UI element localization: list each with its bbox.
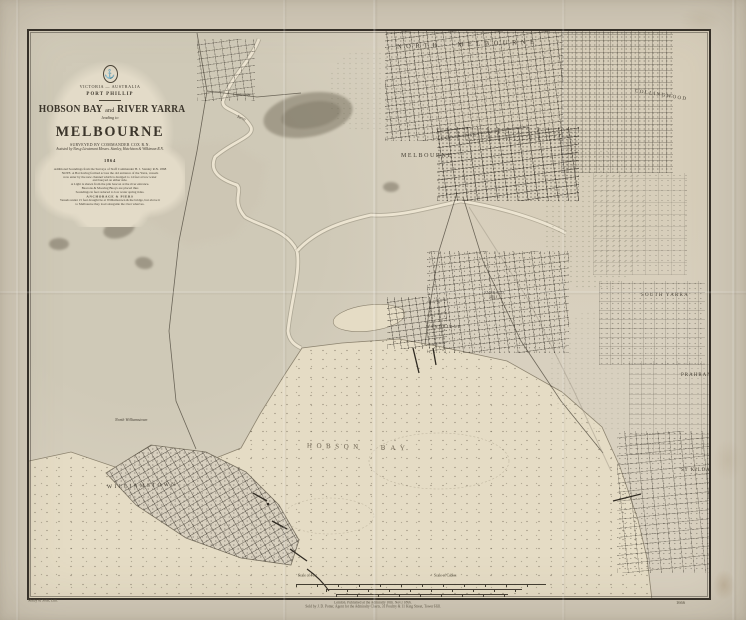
note-line: Soundings in feet reduced to low water s… — [39, 190, 182, 194]
note-line: to Melbourne they load alongside the riv… — [39, 203, 182, 207]
scale-bar — [336, 594, 508, 597]
engraver-imprint: Malby & Sons, Lith. — [28, 599, 58, 603]
scale-bar — [326, 589, 522, 592]
label-hobson-bay: HOBSONBAY — [307, 435, 410, 456]
label-south-yarra: SOUTH YARRA — [641, 293, 689, 298]
gardens-speckle-east — [544, 149, 644, 289]
scale-bars: Scale of Feet Scale of Cables — [284, 574, 556, 600]
title-left: HOBSON BAY — [39, 104, 103, 115]
survey-year: 1864 — [54, 159, 167, 165]
street-grid-st-kilda — [617, 431, 711, 573]
map-frame: ⚓ VICTORIA — AUSTRALIA PORT PHILLIP HOBS… — [27, 29, 711, 600]
admiralty-anchor-crest-icon: ⚓ — [103, 65, 118, 83]
label-north-williamstown: North Williamstown — [115, 418, 147, 422]
title-and: and — [105, 107, 115, 114]
label-footscray: Footscray — [233, 92, 251, 97]
label-bay: BAY — [381, 444, 410, 453]
title-right: RIVER YARRA — [117, 104, 185, 115]
label-hill: HILL — [472, 295, 515, 299]
survey-credits: SURVEYED BY COMMANDER COX R.N. Assisted … — [38, 143, 182, 153]
port-line: PORT PHILLIP — [54, 91, 167, 97]
label-st-kilda: ST KILDA — [681, 468, 711, 473]
region-line: VICTORIA — AUSTRALIA — [58, 85, 163, 89]
label-hobson: HOBSON — [307, 442, 363, 451]
scale-label-right: Scale of Cables — [434, 574, 456, 578]
assisted-line: Assisted by Nav.g Lieutenant Messrs. Sta… — [38, 148, 182, 152]
publication-imprint: London. Published at the Admiralty 10th.… — [163, 601, 583, 609]
city-title: MELBOURNE — [39, 124, 182, 141]
chart-title: HOBSON BAY and RIVER YARRA — [39, 104, 182, 115]
label-emerald-hill: EMERALDHILL — [459, 291, 529, 305]
chart-notes: Additional Soundings from the Surveys of… — [39, 168, 182, 206]
scale-bar — [296, 584, 546, 587]
gardens-speckle-royal-park — [329, 51, 409, 131]
label-prahran: PRAHRAN — [681, 373, 711, 378]
label-sandridge: SANDRIDGE — [427, 325, 461, 329]
gardens-speckle-albert-park — [549, 311, 659, 431]
chart-paper: ⚓ VICTORIA — AUSTRALIA PORT PHILLIP HOBS… — [0, 0, 746, 620]
scale-label-left: Scale of Feet — [298, 574, 317, 578]
leading-to-line: leading to — [58, 116, 163, 121]
cartouche-rule — [99, 100, 121, 101]
title-cartouche: ⚓ VICTORIA — AUSTRALIA PORT PHILLIP HOBS… — [35, 57, 185, 227]
label-melbourne: MELBOURNE — [401, 153, 453, 159]
plate-number: 1666 — [676, 600, 685, 605]
imprint-line-2: Sold by J. D. Potter, Agent for the Admi… — [163, 605, 583, 609]
label-yarra-river: Yarra — [236, 114, 246, 121]
